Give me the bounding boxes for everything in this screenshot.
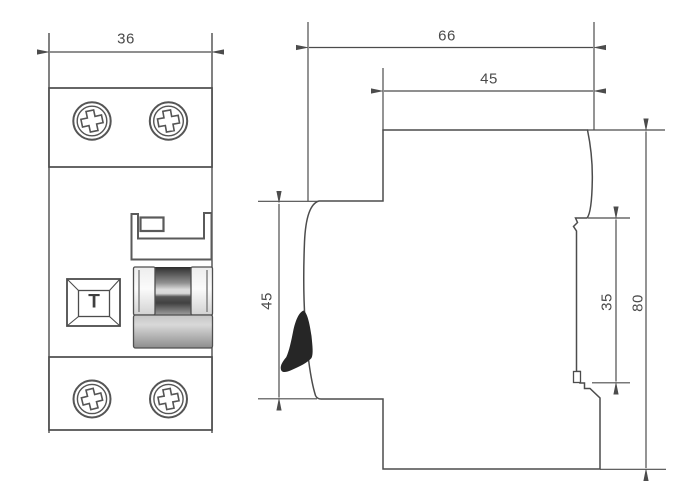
dim-label-front-height: 45 [259, 292, 276, 310]
toggle-lower-pad [134, 315, 213, 348]
side-view [258, 22, 666, 469]
terminal-screw-icon [150, 102, 187, 139]
drawing-linework [0, 0, 700, 500]
test-button-label: T [88, 292, 100, 314]
side-profile-outline [304, 130, 600, 469]
terminal-screw-icon [74, 381, 111, 418]
terminal-screw-icon [150, 381, 187, 418]
din-rail-clip-tab [574, 372, 581, 383]
indicator-window [141, 218, 164, 232]
dimensional-drawing: 36 66 45 45 35 80 T [0, 0, 700, 500]
dim-label-front-width: 36 [117, 31, 135, 48]
dim-label-rail-recess: 35 [599, 293, 616, 311]
terminal-screw-icon [73, 102, 110, 139]
front-view [49, 33, 213, 433]
toggle-switch-handle [134, 267, 213, 348]
toggle-lever-side [281, 311, 313, 373]
dim-label-overall-depth: 66 [438, 28, 456, 45]
dim-label-body-depth: 45 [480, 71, 498, 88]
dim-label-overall-height: 80 [630, 294, 647, 312]
